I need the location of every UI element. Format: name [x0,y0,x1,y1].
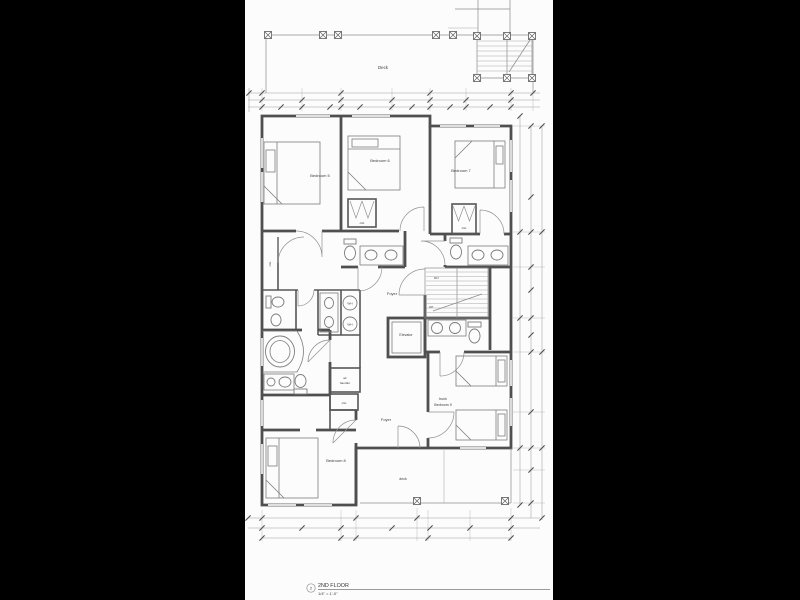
sheet-scale: 1/4" = 1'-0" [318,591,338,596]
water-heater-1-label: WH [347,302,352,306]
drawing-sheet [245,0,553,600]
floorplan-canvas: Deck [0,0,800,600]
bedroom8-label: Bedroom 8 [326,458,346,463]
bedroom9-label-line2: Bedroom 9 [434,403,452,407]
bedroom5-label: Bedroom 5 [310,173,330,178]
elevator-label: Elevator [399,333,413,337]
stairs-up-label: UP [429,305,433,309]
closet-b5-label: clst [268,262,272,267]
closet-mech: clst [342,401,347,405]
closet-mech-label: clst [342,401,347,405]
upper-deck-label: Deck [378,65,389,70]
closet-b6-label: clst [360,221,365,225]
air-handler-label-line2: handler [340,381,350,385]
closet-bedroom5: clst [268,262,272,267]
sheet-title: 2ND FLOOR [318,583,349,589]
foyer-upper-label: Foyer [387,291,398,296]
foyer-lower-label: Foyer [381,417,392,422]
air-handler-label-line1: air [343,376,346,380]
bedroom7-label: Bedroom 7 [451,168,471,173]
letterbox-background: Deck [0,0,800,600]
lower-deck-label: deck [399,477,407,481]
bedroom9-label-line1: bunk [439,397,447,401]
bedroom6-label: Bedroom 6 [370,158,390,163]
water-heater-2-label: WH [347,323,352,327]
stairs-dn-label: DN [434,276,438,280]
closet-b7-label: clst [462,226,467,230]
